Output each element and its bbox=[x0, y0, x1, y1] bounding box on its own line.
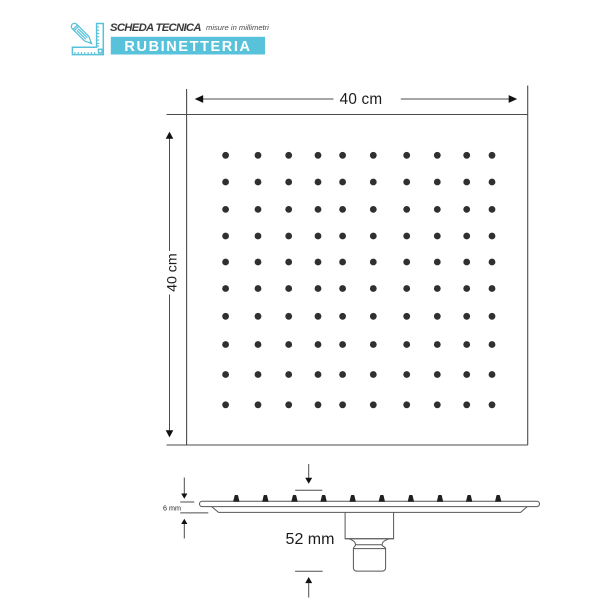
svg-text:SCHEDA TECNICA: SCHEDA TECNICA bbox=[110, 22, 201, 34]
svg-text:52 mm: 52 mm bbox=[286, 531, 335, 548]
svg-text:6 mm: 6 mm bbox=[163, 503, 181, 512]
svg-text:40 cm: 40 cm bbox=[340, 91, 383, 108]
svg-text:40 cm: 40 cm bbox=[164, 253, 180, 292]
svg-text:misure in millimetri: misure in millimetri bbox=[206, 23, 269, 32]
svg-text:RUBINETTERIA: RUBINETTERIA bbox=[124, 39, 251, 55]
